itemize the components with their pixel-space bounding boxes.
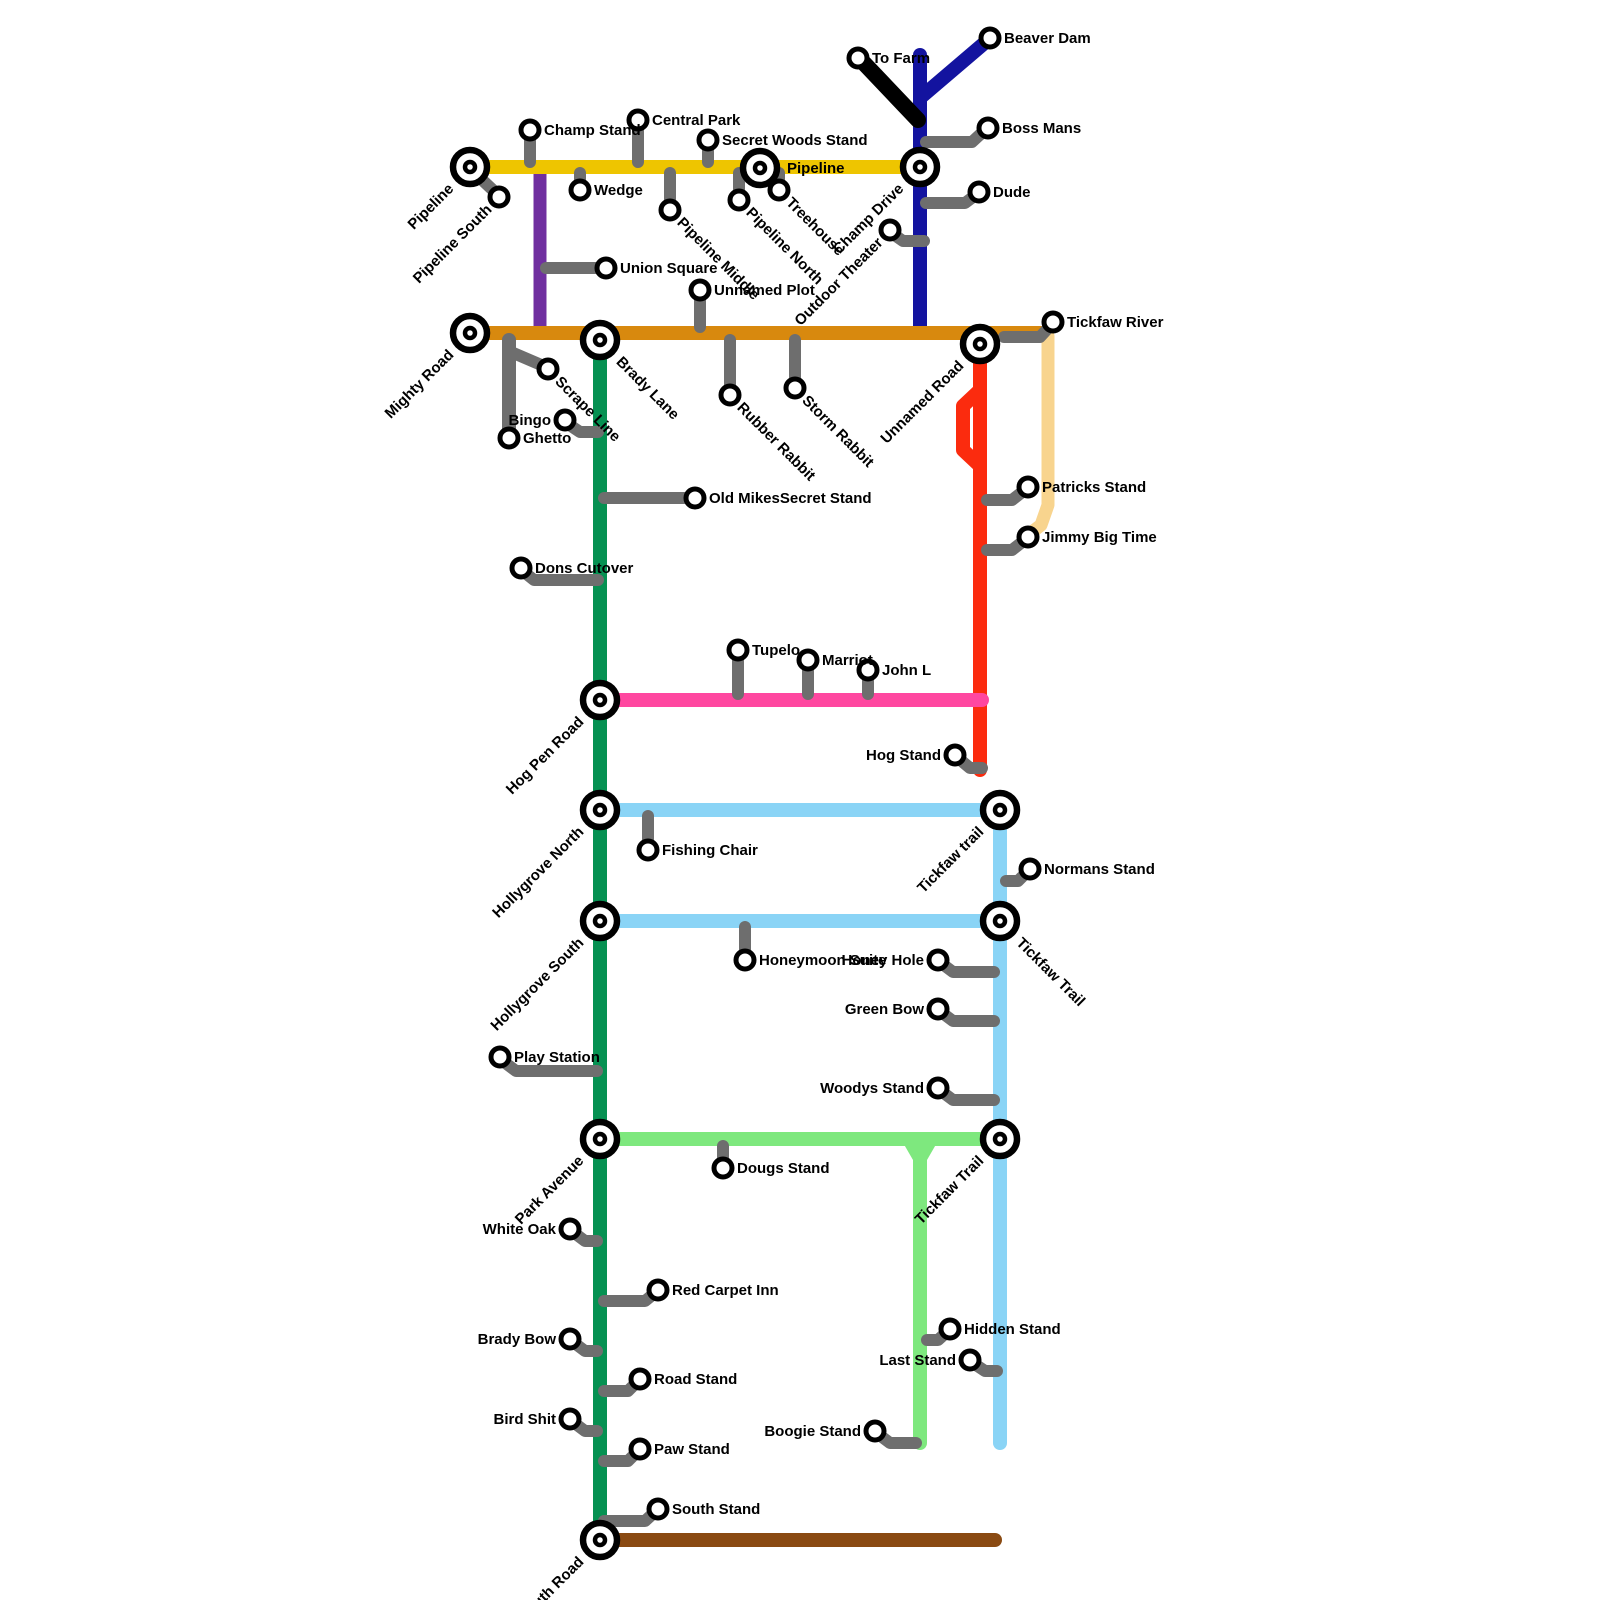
label-park-avenue: Park Avenue: [512, 1152, 587, 1227]
label-hollygrove-north: Hollygrove North: [489, 823, 587, 921]
spur-woodys-stand: [941, 1091, 994, 1100]
interchange-core-tickfaw-trail-e: [995, 916, 1005, 926]
station-marriot[interactable]: [799, 651, 817, 669]
station-green-bow[interactable]: [929, 1000, 947, 1018]
label-fishing-chair: Fishing Chair: [662, 842, 758, 859]
label-union-square: Union Square: [620, 260, 718, 277]
station-hidden-stand[interactable]: [941, 1320, 959, 1338]
station-last-stand[interactable]: [961, 1351, 979, 1369]
label-storm-rabbit: Storm Rabbit: [799, 392, 878, 471]
label-green-bow: Green Bow: [845, 1001, 925, 1018]
station-secret-woods-stand[interactable]: [699, 131, 717, 149]
station-wedge[interactable]: [571, 181, 589, 199]
interchange-core-pipeline-west: [465, 162, 475, 172]
station-road-stand[interactable]: [631, 1370, 649, 1388]
spur-green-bow: [941, 1012, 994, 1021]
station-honeymoon-suite[interactable]: [736, 951, 754, 969]
transit-map-canvas: To FarmBeaver DamBoss MansDudeOutdoor Th…: [0, 0, 1600, 1600]
label-jimmy-big-time: Jimmy Big Time: [1042, 529, 1157, 546]
label-tickfaw-trail-ne: Tickfaw trail: [914, 823, 987, 896]
label-hog-pen-road: Hog Pen Road: [503, 713, 588, 798]
label-tickfaw-trail-e: Tickfaw Trail: [1013, 934, 1088, 1009]
interchange-core-tickfaw-trail-ne: [995, 805, 1005, 815]
spur-honey-hole: [941, 963, 994, 972]
station-old-mikessecret-stand[interactable]: [686, 489, 704, 507]
transit-map: To FarmBeaver DamBoss MansDudeOutdoor Th…: [0, 0, 1600, 1600]
label-tupelo: Tupelo: [752, 642, 800, 659]
flare-park-branch-flare: [898, 1134, 942, 1160]
interchange-core-champ-drive: [915, 162, 925, 172]
label-wedge: Wedge: [594, 182, 643, 199]
station-unnamed-plot[interactable]: [691, 281, 709, 299]
station-scrape-line[interactable]: [539, 360, 557, 378]
station-tickfaw-river[interactable]: [1044, 313, 1062, 331]
interchange-core-hollygrove-north: [595, 805, 605, 815]
station-hog-stand[interactable]: [946, 746, 964, 764]
line-champ-drive-branch: [920, 40, 988, 98]
label-red-carpet-inn: Red Carpet Inn: [672, 1282, 779, 1299]
station-ghetto[interactable]: [500, 429, 518, 447]
label-honey-hole: Honey Hole: [841, 952, 924, 969]
interchange-core-pipeline-east: [755, 163, 765, 173]
station-boogie-stand[interactable]: [866, 1422, 884, 1440]
label-boss-mans: Boss Mans: [1002, 120, 1081, 137]
label-normans-stand: Normans Stand: [1044, 861, 1155, 878]
station-play-station[interactable]: [491, 1048, 509, 1066]
station-white-oak[interactable]: [561, 1220, 579, 1238]
label-ghetto: Ghetto: [523, 430, 571, 447]
station-beaver-dam[interactable]: [981, 29, 999, 47]
spur-boss-mans: [926, 130, 985, 142]
interchange-core-brady-lane: [595, 335, 605, 345]
station-to-farm[interactable]: [849, 49, 867, 67]
station-champ-stand[interactable]: [521, 121, 539, 139]
interchange-core-south-road: [595, 1535, 605, 1545]
label-play-station: Play Station: [514, 1049, 600, 1066]
station-rubber-rabbit[interactable]: [721, 386, 739, 404]
interchange-core-mighty-road: [465, 328, 475, 338]
line-tickfaw-river-line: [1027, 336, 1048, 536]
station-dude[interactable]: [970, 183, 988, 201]
station-tupelo[interactable]: [729, 641, 747, 659]
label-secret-woods-stand: Secret Woods Stand: [722, 132, 868, 149]
station-jimmy-big-time[interactable]: [1019, 528, 1037, 546]
station-paw-stand[interactable]: [631, 1440, 649, 1458]
label-john-l: John L: [882, 662, 931, 679]
label-dude: Dude: [993, 184, 1031, 201]
station-pipeline-middle[interactable]: [661, 201, 679, 219]
label-patricks-stand: Patricks Stand: [1042, 479, 1146, 496]
station-patricks-stand[interactable]: [1019, 478, 1037, 496]
station-bird-shit[interactable]: [561, 1410, 579, 1428]
station-brady-bow[interactable]: [561, 1330, 579, 1348]
label-tickfaw-river: Tickfaw River: [1067, 314, 1164, 331]
station-union-square[interactable]: [597, 259, 615, 277]
label-road-stand: Road Stand: [654, 1371, 737, 1388]
line-to-farm-line: [861, 60, 918, 120]
station-normans-stand[interactable]: [1021, 860, 1039, 878]
label-woodys-stand: Woodys Stand: [820, 1080, 924, 1097]
station-outdoor-theater[interactable]: [881, 221, 899, 239]
station-bingo[interactable]: [556, 411, 574, 429]
interchange-core-hollygrove-south: [595, 916, 605, 926]
interchange-core-hog-pen-road: [595, 695, 605, 705]
label-pipeline-west: Pipeline: [405, 180, 458, 233]
label-mighty-road: Mighty Road: [382, 346, 458, 422]
label-dons-cutover: Dons Cutover: [535, 560, 634, 577]
station-south-stand[interactable]: [649, 1500, 667, 1518]
label-paw-stand: Paw Stand: [654, 1441, 730, 1458]
label-hog-stand: Hog Stand: [866, 747, 941, 764]
label-hidden-stand: Hidden Stand: [964, 1321, 1061, 1338]
label-last-stand: Last Stand: [879, 1352, 956, 1369]
station-honey-hole[interactable]: [929, 951, 947, 969]
label-old-mikessecret-stand: Old MikesSecret Stand: [709, 490, 872, 507]
label-boogie-stand: Boogie Stand: [764, 1423, 861, 1440]
interchange-core-park-avenue: [595, 1134, 605, 1144]
station-pipeline-north[interactable]: [730, 191, 748, 209]
label-bird-shit: Bird Shit: [494, 1411, 557, 1428]
station-fishing-chair[interactable]: [639, 841, 657, 859]
label-bingo: Bingo: [509, 412, 552, 429]
label-to-farm: To Farm: [872, 50, 930, 67]
station-boss-mans[interactable]: [979, 119, 997, 137]
label-brady-bow: Brady Bow: [478, 1331, 557, 1348]
station-woodys-stand[interactable]: [929, 1079, 947, 1097]
label-hollygrove-south: Hollygrove South: [487, 934, 587, 1034]
station-dons-cutover[interactable]: [512, 559, 530, 577]
interchange-core-unnamed-road: [975, 339, 985, 349]
label-champ-stand: Champ Stand: [544, 122, 641, 139]
label-south-stand: South Stand: [672, 1501, 760, 1518]
label-south-road: South Road: [516, 1553, 588, 1600]
label-brady-lane: Brady Lane: [613, 353, 683, 423]
station-pipeline-south[interactable]: [490, 188, 508, 206]
label-beaver-dam: Beaver Dam: [1004, 30, 1091, 47]
station-dougs-stand[interactable]: [714, 1159, 732, 1177]
label-rubber-rabbit: Rubber Rabbit: [734, 399, 819, 484]
label-marriot: Marriot: [822, 652, 873, 669]
label-unnamed-road: Unnamed Road: [877, 357, 967, 447]
interchange-core-tickfaw-trail-se: [995, 1134, 1005, 1144]
label-unnamed-plot: Unnamed Plot: [714, 282, 815, 299]
station-storm-rabbit[interactable]: [786, 379, 804, 397]
label-central-park: Central Park: [652, 112, 741, 129]
station-red-carpet-inn[interactable]: [649, 1281, 667, 1299]
label-dougs-stand: Dougs Stand: [737, 1160, 830, 1177]
label-pipeline-east: Pipeline: [787, 160, 845, 177]
